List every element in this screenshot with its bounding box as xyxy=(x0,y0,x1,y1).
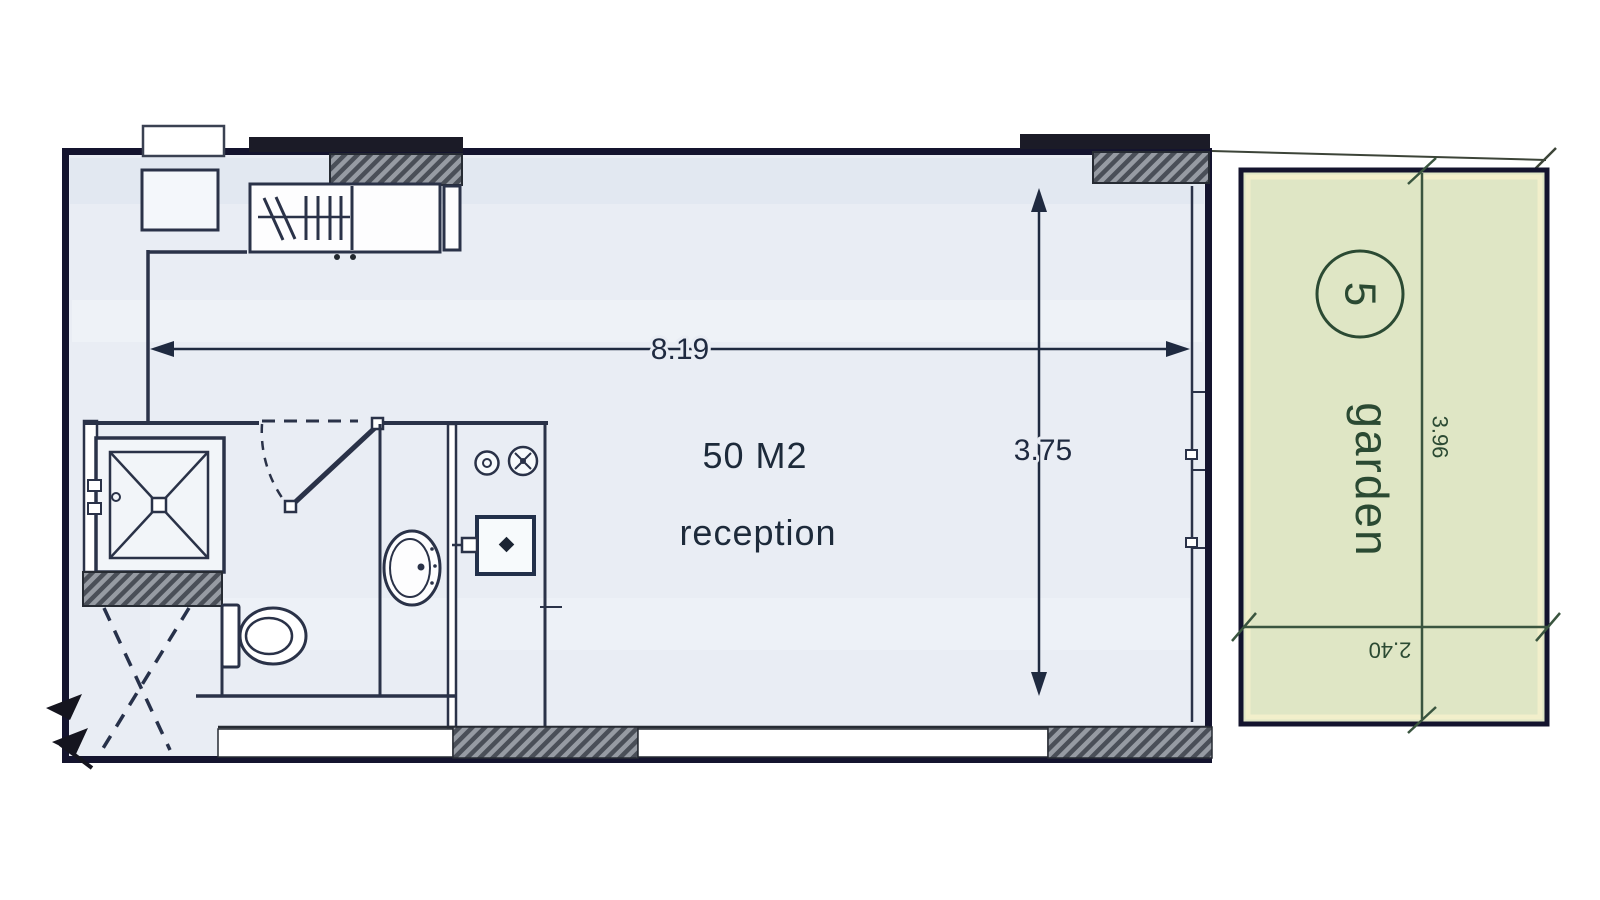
shower-drain xyxy=(152,498,166,512)
garden-number-label: 5 xyxy=(1336,282,1385,306)
wall-hatch-bathroom xyxy=(83,572,222,606)
bottom-wall xyxy=(218,727,1212,758)
wall-hatch-top-left xyxy=(330,154,462,185)
shower xyxy=(88,438,224,572)
toilet-bowl xyxy=(240,608,306,664)
garden-area: 5 garden 3.96 2.40 xyxy=(1212,148,1560,733)
floor-plan-page: 8.19 3.75 50 M2 reception 5 garden 3.96 … xyxy=(0,0,1600,900)
door-handle xyxy=(285,501,296,512)
wall-hatch-top-right xyxy=(1093,152,1209,183)
wardrobe-dot xyxy=(350,254,356,260)
floor-shading-band xyxy=(70,158,1204,204)
lintel-bar-left xyxy=(249,137,463,152)
shower-valve-icon xyxy=(88,480,101,491)
floor-shading-band xyxy=(72,300,1202,342)
shower-valve-icon xyxy=(88,503,101,514)
toilet-tank xyxy=(222,605,239,667)
dim-width-label: 8.19 xyxy=(651,333,709,366)
burner-center xyxy=(520,458,526,464)
garden-width-dim-label: 2.40 xyxy=(1369,638,1412,663)
window-band xyxy=(638,729,1048,757)
window-band xyxy=(218,729,453,757)
washbasin-tap-dot xyxy=(433,564,437,568)
wardrobe-end-panel xyxy=(444,186,460,250)
lintel-bar-right xyxy=(1020,134,1210,149)
top-left-column xyxy=(143,126,224,156)
toilet xyxy=(222,605,306,667)
window-latch xyxy=(1186,450,1197,459)
garden-name-label: garden xyxy=(1346,402,1398,557)
wardrobe xyxy=(250,184,460,260)
floor-plan-svg: 8.19 3.75 50 M2 reception 5 garden 3.96 … xyxy=(0,0,1600,900)
bathroom-kitchen-wall xyxy=(448,424,456,727)
dim-height-label: 3.75 xyxy=(1014,434,1072,467)
washbasin-drain xyxy=(418,564,425,571)
washbasin-tap-dot xyxy=(430,547,434,551)
wall-hatch-bottom-left xyxy=(453,727,638,758)
room-area-label: 50 M2 xyxy=(702,435,807,476)
garden-length-dim-label: 3.96 xyxy=(1428,416,1453,459)
wall-hatch-bottom-right xyxy=(1048,727,1212,758)
room-name-label: reception xyxy=(679,512,836,553)
washbasin xyxy=(384,531,440,605)
washbasin-rim xyxy=(384,531,440,605)
sink-tap-icon xyxy=(462,538,477,552)
entry-cabinet xyxy=(142,170,218,230)
window-latch xyxy=(1186,538,1197,547)
burner-icon xyxy=(476,452,499,475)
wardrobe-dot xyxy=(334,254,340,260)
washbasin-tap-dot xyxy=(430,581,434,585)
